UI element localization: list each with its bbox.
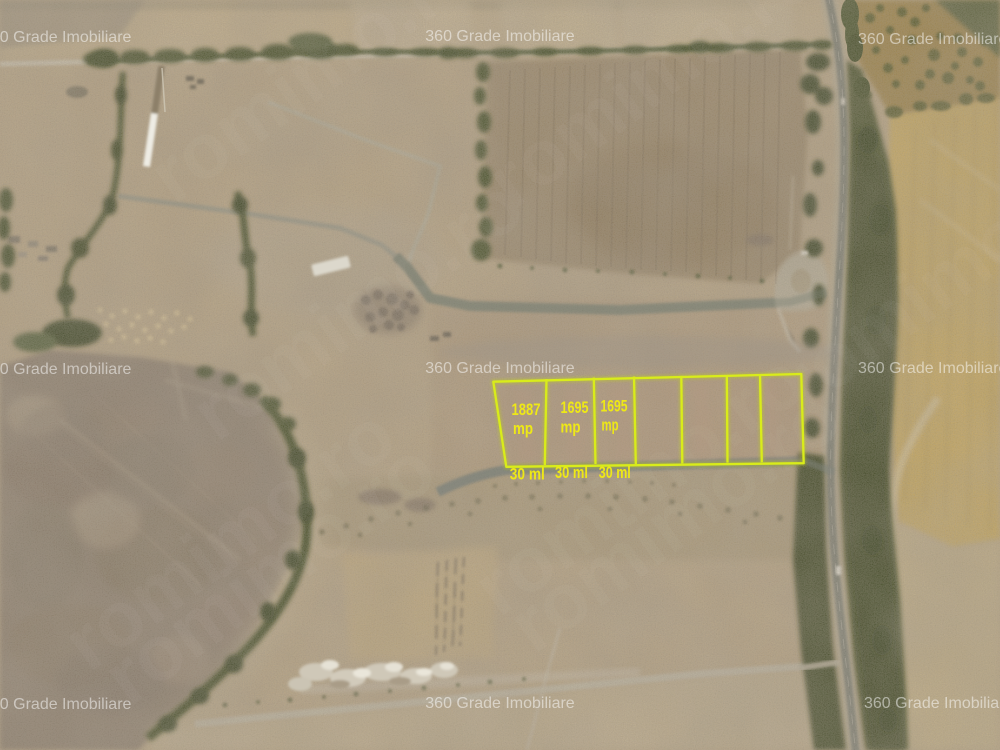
svg-text:360 Grade Imobiliare: 360 Grade Imobiliare — [858, 360, 1000, 377]
svg-text:mp: mp — [561, 418, 581, 437]
svg-text:1887: 1887 — [512, 400, 541, 419]
svg-text:mp: mp — [602, 416, 619, 435]
svg-text:1695: 1695 — [601, 397, 628, 416]
svg-text:1695: 1695 — [561, 398, 589, 417]
svg-text:360 Grade Imobiliare: 360 Grade Imobiliare — [0, 696, 132, 713]
svg-text:360 Grade Imobiliare: 360 Grade Imobiliare — [425, 28, 575, 45]
svg-text:30 ml: 30 ml — [599, 463, 631, 482]
svg-text:30 ml: 30 ml — [510, 465, 545, 484]
svg-text:360 Grade Imobiliare: 360 Grade Imobiliare — [0, 29, 132, 46]
svg-text:mp: mp — [513, 419, 533, 438]
svg-text:360 Grade Imobiliare: 360 Grade Imobiliare — [0, 361, 132, 378]
svg-text:360 Grade Imobiliare: 360 Grade Imobiliare — [858, 31, 1000, 48]
svg-text:360 Grade Imobiliare: 360 Grade Imobiliare — [425, 695, 575, 712]
svg-text:360 Grade Imobiliare: 360 Grade Imobiliare — [864, 695, 1000, 712]
svg-text:360 Grade Imobiliare: 360 Grade Imobiliare — [425, 360, 575, 377]
svg-text:30 ml: 30 ml — [555, 463, 588, 482]
